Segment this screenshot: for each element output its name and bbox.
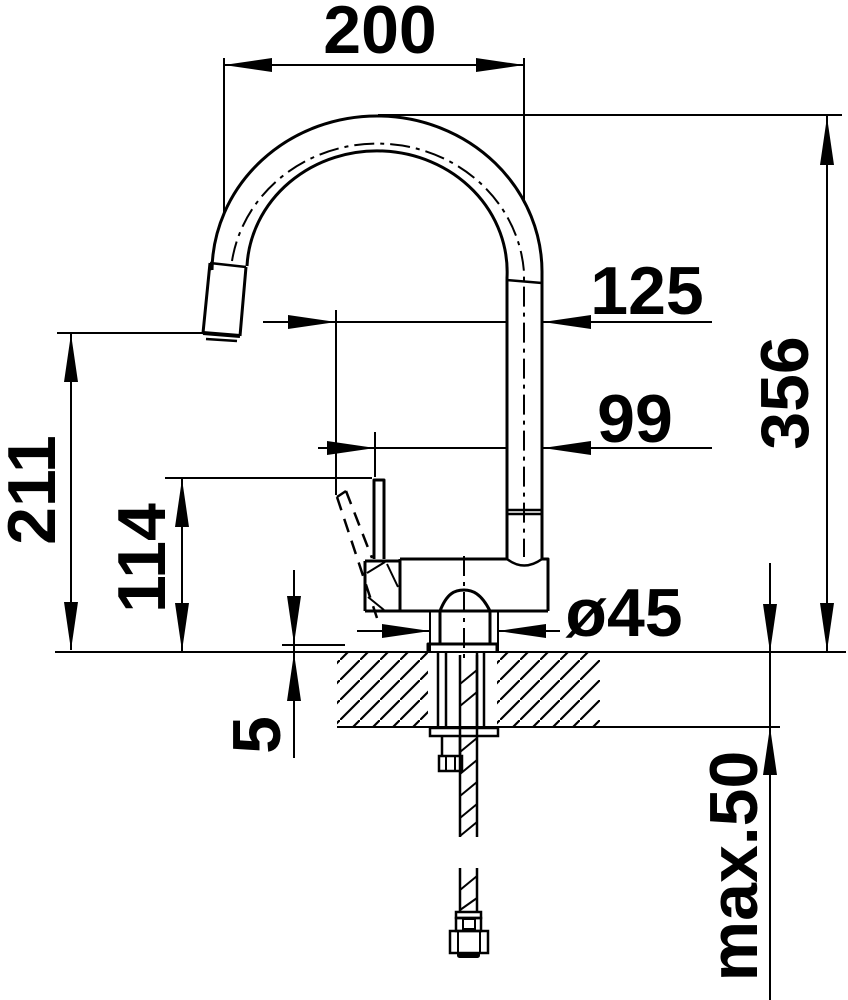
pipe-body-fillet xyxy=(507,559,542,566)
dimension-label-356: 356 xyxy=(747,336,823,449)
dimension-114-lever-height: 114 xyxy=(104,478,372,651)
arrow-down-icon xyxy=(287,596,301,644)
dimension-99-offset: 99 xyxy=(318,381,712,477)
dimension-label-99: 99 xyxy=(597,381,673,457)
dimension-200-spout-reach: 200 xyxy=(224,0,524,212)
faucet-body xyxy=(365,556,548,658)
arrow-up-icon xyxy=(820,117,834,165)
pull-out-spray-head xyxy=(203,263,246,341)
technical-drawing-canvas: 200 125 99 211 114 356 xyxy=(0,0,848,1000)
faucet-outline xyxy=(203,116,548,658)
dimension-label-5: 5 xyxy=(219,716,295,754)
arrow-right-icon xyxy=(327,441,375,455)
dimension-125-offset: 125 xyxy=(263,253,712,495)
arrow-left-icon xyxy=(224,58,272,72)
spout-arc-inner xyxy=(247,151,507,559)
dimension-label-200: 200 xyxy=(323,0,436,68)
countertop-section xyxy=(55,652,846,727)
dimension-label-d45: ø45 xyxy=(565,575,682,651)
mounting-stud-and-nut xyxy=(439,736,462,771)
arrow-left-icon xyxy=(498,624,546,638)
base-flange xyxy=(428,644,497,652)
dimension-max50-counter-thickness: max.50 xyxy=(696,563,777,1000)
arrow-right-icon xyxy=(382,624,430,638)
spout-centerline xyxy=(232,144,524,557)
countertop-hatching-left xyxy=(337,653,428,727)
dimension-5-base-plate: 5 xyxy=(219,570,345,758)
fitting-end-cap xyxy=(457,952,480,958)
arrow-down-icon xyxy=(64,602,78,650)
arrow-left-icon xyxy=(543,315,591,329)
supply-hose xyxy=(460,655,477,912)
hose-end-fitting xyxy=(450,912,488,958)
lever-handle xyxy=(374,480,384,559)
spout-arc-outer xyxy=(212,116,542,559)
arrow-left-icon xyxy=(543,441,591,455)
dimension-d45-base-diameter: ø45 xyxy=(357,575,683,651)
dimension-label-125: 125 xyxy=(590,253,703,329)
pipe-joint-upper xyxy=(507,280,542,283)
dimension-label-211: 211 xyxy=(0,435,70,545)
arrow-up-icon xyxy=(287,653,301,701)
faucet-dimension-drawing: 200 125 99 211 114 356 xyxy=(0,0,848,1000)
arrow-down-icon xyxy=(763,604,777,652)
arrow-down-icon xyxy=(820,603,834,651)
arrow-up-icon xyxy=(64,334,78,382)
arrow-right-icon xyxy=(288,315,336,329)
lever-mount xyxy=(365,561,400,611)
arrow-right-icon xyxy=(476,58,524,72)
dimension-label-114: 114 xyxy=(104,503,180,613)
dimension-label-max50: max.50 xyxy=(696,751,772,982)
mounting-washer xyxy=(430,728,498,736)
countertop-hatching-right xyxy=(497,653,600,727)
